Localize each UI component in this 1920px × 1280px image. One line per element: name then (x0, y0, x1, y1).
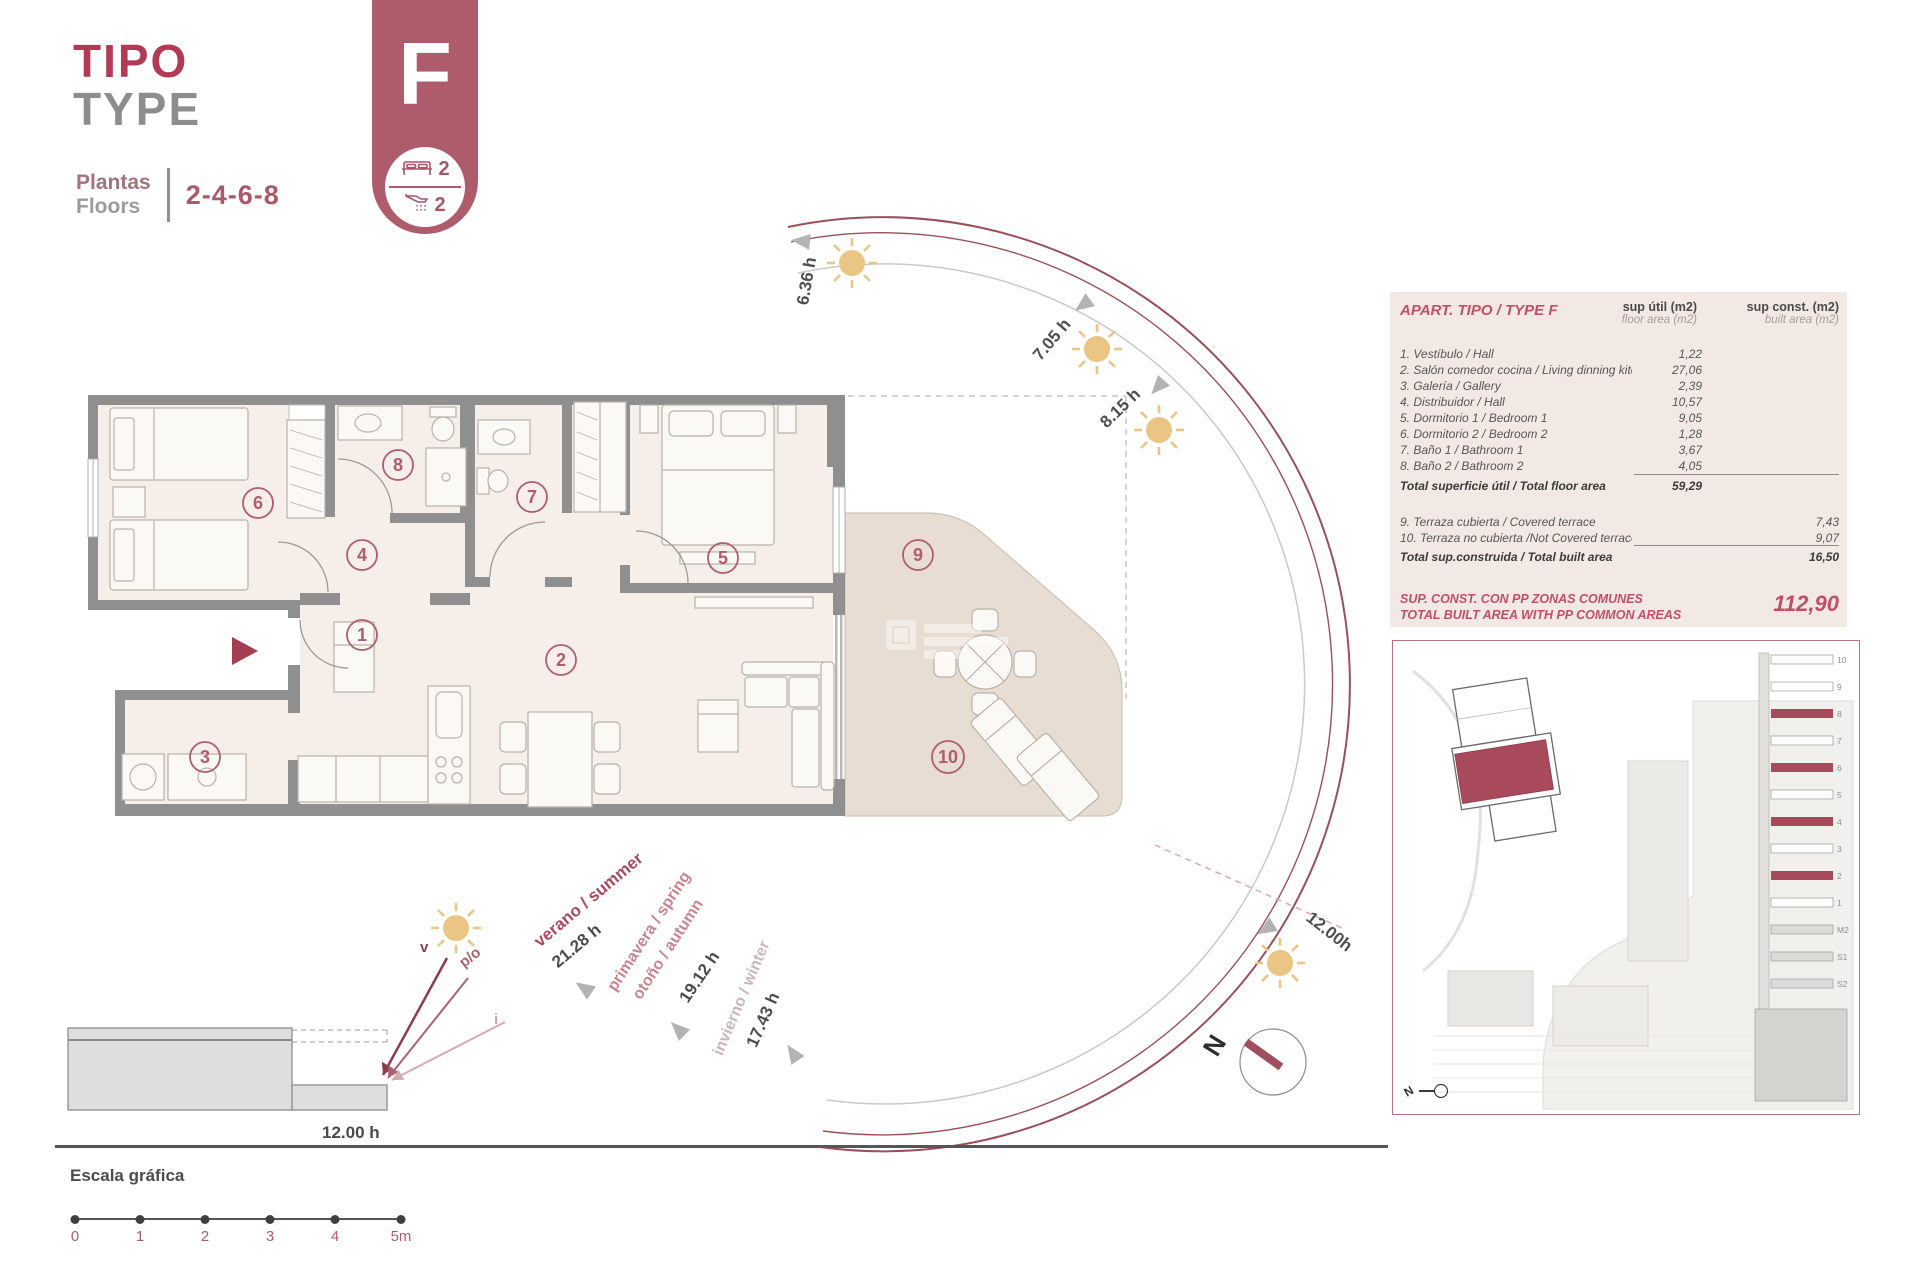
table-row: 2. Salón comedor cocina / Living dinning… (1400, 362, 1839, 378)
svg-text:1: 1 (357, 625, 367, 645)
svg-text:4: 4 (1837, 817, 1842, 827)
compass-north-label: N (1197, 1029, 1232, 1061)
rule (1634, 545, 1839, 546)
col-header-const: sup const. (m2) built area (m2) (1747, 300, 1839, 326)
plan-sheet: TIPO TYPE Plantas Floors 2-4-6-8 F (0, 0, 1920, 1280)
total-const-row: Total sup.construida / Total built area1… (1400, 549, 1839, 565)
scale-tick: 0 (71, 1228, 79, 1245)
svg-text:M2: M2 (1837, 925, 1849, 935)
svg-text:3: 3 (1837, 844, 1842, 854)
hour-label: 6.36 h (793, 256, 820, 307)
col-header-util: sup útil (m2) floor area (m2) (1622, 300, 1697, 326)
svg-text:3: 3 (200, 747, 210, 767)
scale-dot (266, 1215, 275, 1224)
svg-text:7: 7 (1837, 736, 1842, 746)
table-row: 10. Terraza no cubierta /Not Covered ter… (1400, 530, 1839, 546)
north-compass: N (1197, 1029, 1306, 1095)
table-row: 9. Terraza cubierta / Covered terrace7,4… (1400, 514, 1839, 530)
arc-arrow (790, 232, 811, 250)
scale-dot (136, 1215, 145, 1224)
highlighted-floor (1771, 817, 1833, 826)
table-footer: SUP. CONST. CON PP ZONAS COMUNES TOTAL B… (1400, 592, 1681, 623)
arc-arrow (665, 1016, 690, 1041)
svg-text:10: 10 (1837, 655, 1847, 665)
scale-dot (397, 1215, 406, 1224)
sun-icon (827, 238, 877, 288)
scale-tick: 2 (201, 1228, 209, 1245)
section-noon-label: 12.00 h (322, 1123, 380, 1142)
svg-text:S2: S2 (1837, 979, 1848, 989)
svg-text:7: 7 (527, 487, 537, 507)
arc-arrow (781, 1040, 805, 1065)
highlighted-floor (1771, 709, 1833, 718)
ray-label-summer: v (420, 939, 429, 956)
rule (1634, 474, 1839, 475)
svg-text:4: 4 (357, 545, 367, 565)
svg-text:6: 6 (1837, 763, 1842, 773)
scale-dot (201, 1215, 210, 1224)
svg-text:10: 10 (938, 747, 958, 767)
building (1553, 986, 1648, 1046)
table-row: 8. Baño 2 / Bathroom 24,05 (1400, 458, 1839, 474)
areas-table: APART. TIPO / TYPE F sup útil (m2) floor… (1390, 292, 1847, 627)
scale-line: 0 1 2 3 4 5m (75, 1218, 405, 1220)
site-plan-inset: 10 9 8 7 6 5 4 3 2 1 M2 S1 S2 N (1392, 640, 1860, 1115)
table-title: APART. TIPO / TYPE F (1400, 302, 1558, 319)
divider (55, 1145, 1388, 1148)
svg-text:8: 8 (1837, 709, 1842, 719)
building (1448, 971, 1533, 1026)
terrace-rows: 9. Terraza cubierta / Covered terrace7,4… (1400, 514, 1839, 546)
svg-text:2: 2 (556, 650, 566, 670)
season-spring-hours: 19.12 h (675, 948, 723, 1006)
total-built-with-common: 112,90 (1773, 591, 1839, 617)
table-row: 4. Distribuidor / Hall10,57 (1400, 394, 1839, 410)
featured-building (1443, 676, 1566, 846)
svg-text:1: 1 (1837, 898, 1842, 908)
shadow-section: v p/o i 12.00 h (68, 903, 505, 1142)
compass-needle (1246, 1042, 1281, 1067)
svg-text:5: 5 (1837, 790, 1842, 800)
svg-text:8: 8 (393, 455, 403, 475)
sun-icon (1255, 938, 1305, 988)
ray-label-winter: i (494, 1011, 498, 1028)
svg-text:2: 2 (1837, 871, 1842, 881)
table-row: 7. Baño 1 / Bathroom 13,67 (1400, 442, 1839, 458)
scale-tick: 3 (266, 1228, 274, 1245)
sun-icon (1134, 405, 1184, 455)
inset-north-label: N (1402, 1083, 1417, 1099)
hour-label-noon: 12.00h (1303, 908, 1356, 956)
total-util-row: Total superficie útil / Total floor area… (1400, 478, 1839, 494)
svg-text:5: 5 (718, 548, 728, 568)
highlighted-floor (1771, 763, 1833, 772)
hour-label: 8.15 h (1096, 384, 1144, 431)
svg-text:9: 9 (1837, 682, 1842, 692)
scale-dot (331, 1215, 340, 1224)
scale-title: Escala gráfica (70, 1166, 430, 1186)
hour-label: 7.05 h (1029, 315, 1075, 364)
table-row: 6. Dormitorio 2 / Bedroom 21,28 (1400, 426, 1839, 442)
table-rows: 1. Vestíbulo / Hall1,22 2. Salón comedor… (1400, 346, 1839, 474)
scale-tick: 4 (331, 1228, 339, 1245)
table-row: 5. Dormitorio 1 / Bedroom 19,05 (1400, 410, 1839, 426)
site-plan: 10 9 8 7 6 5 4 3 2 1 M2 S1 S2 N (1393, 641, 1857, 1112)
building (1628, 761, 1688, 961)
svg-text:9: 9 (913, 545, 923, 565)
arc-arrow (571, 976, 596, 1000)
highlighted-floor (1771, 871, 1833, 880)
scale-dot (71, 1215, 80, 1224)
arc-arrow (1145, 375, 1170, 400)
ray-label-spring: p/o (456, 944, 484, 971)
svg-text:6: 6 (253, 493, 263, 513)
scale-tick: 5m (391, 1228, 412, 1245)
scale-tick: 1 (136, 1228, 144, 1245)
graphic-scale: Escala gráfica 0 1 2 3 4 5m (70, 1166, 430, 1266)
entrance-arrow (232, 637, 258, 665)
inset-compass: N (1402, 1083, 1448, 1099)
table-row: 3. Galería / Gallery2,39 (1400, 378, 1839, 394)
svg-text:S1: S1 (1837, 952, 1848, 962)
table-row: 1. Vestíbulo / Hall1,22 (1400, 346, 1839, 362)
sun-icon (1072, 324, 1122, 374)
